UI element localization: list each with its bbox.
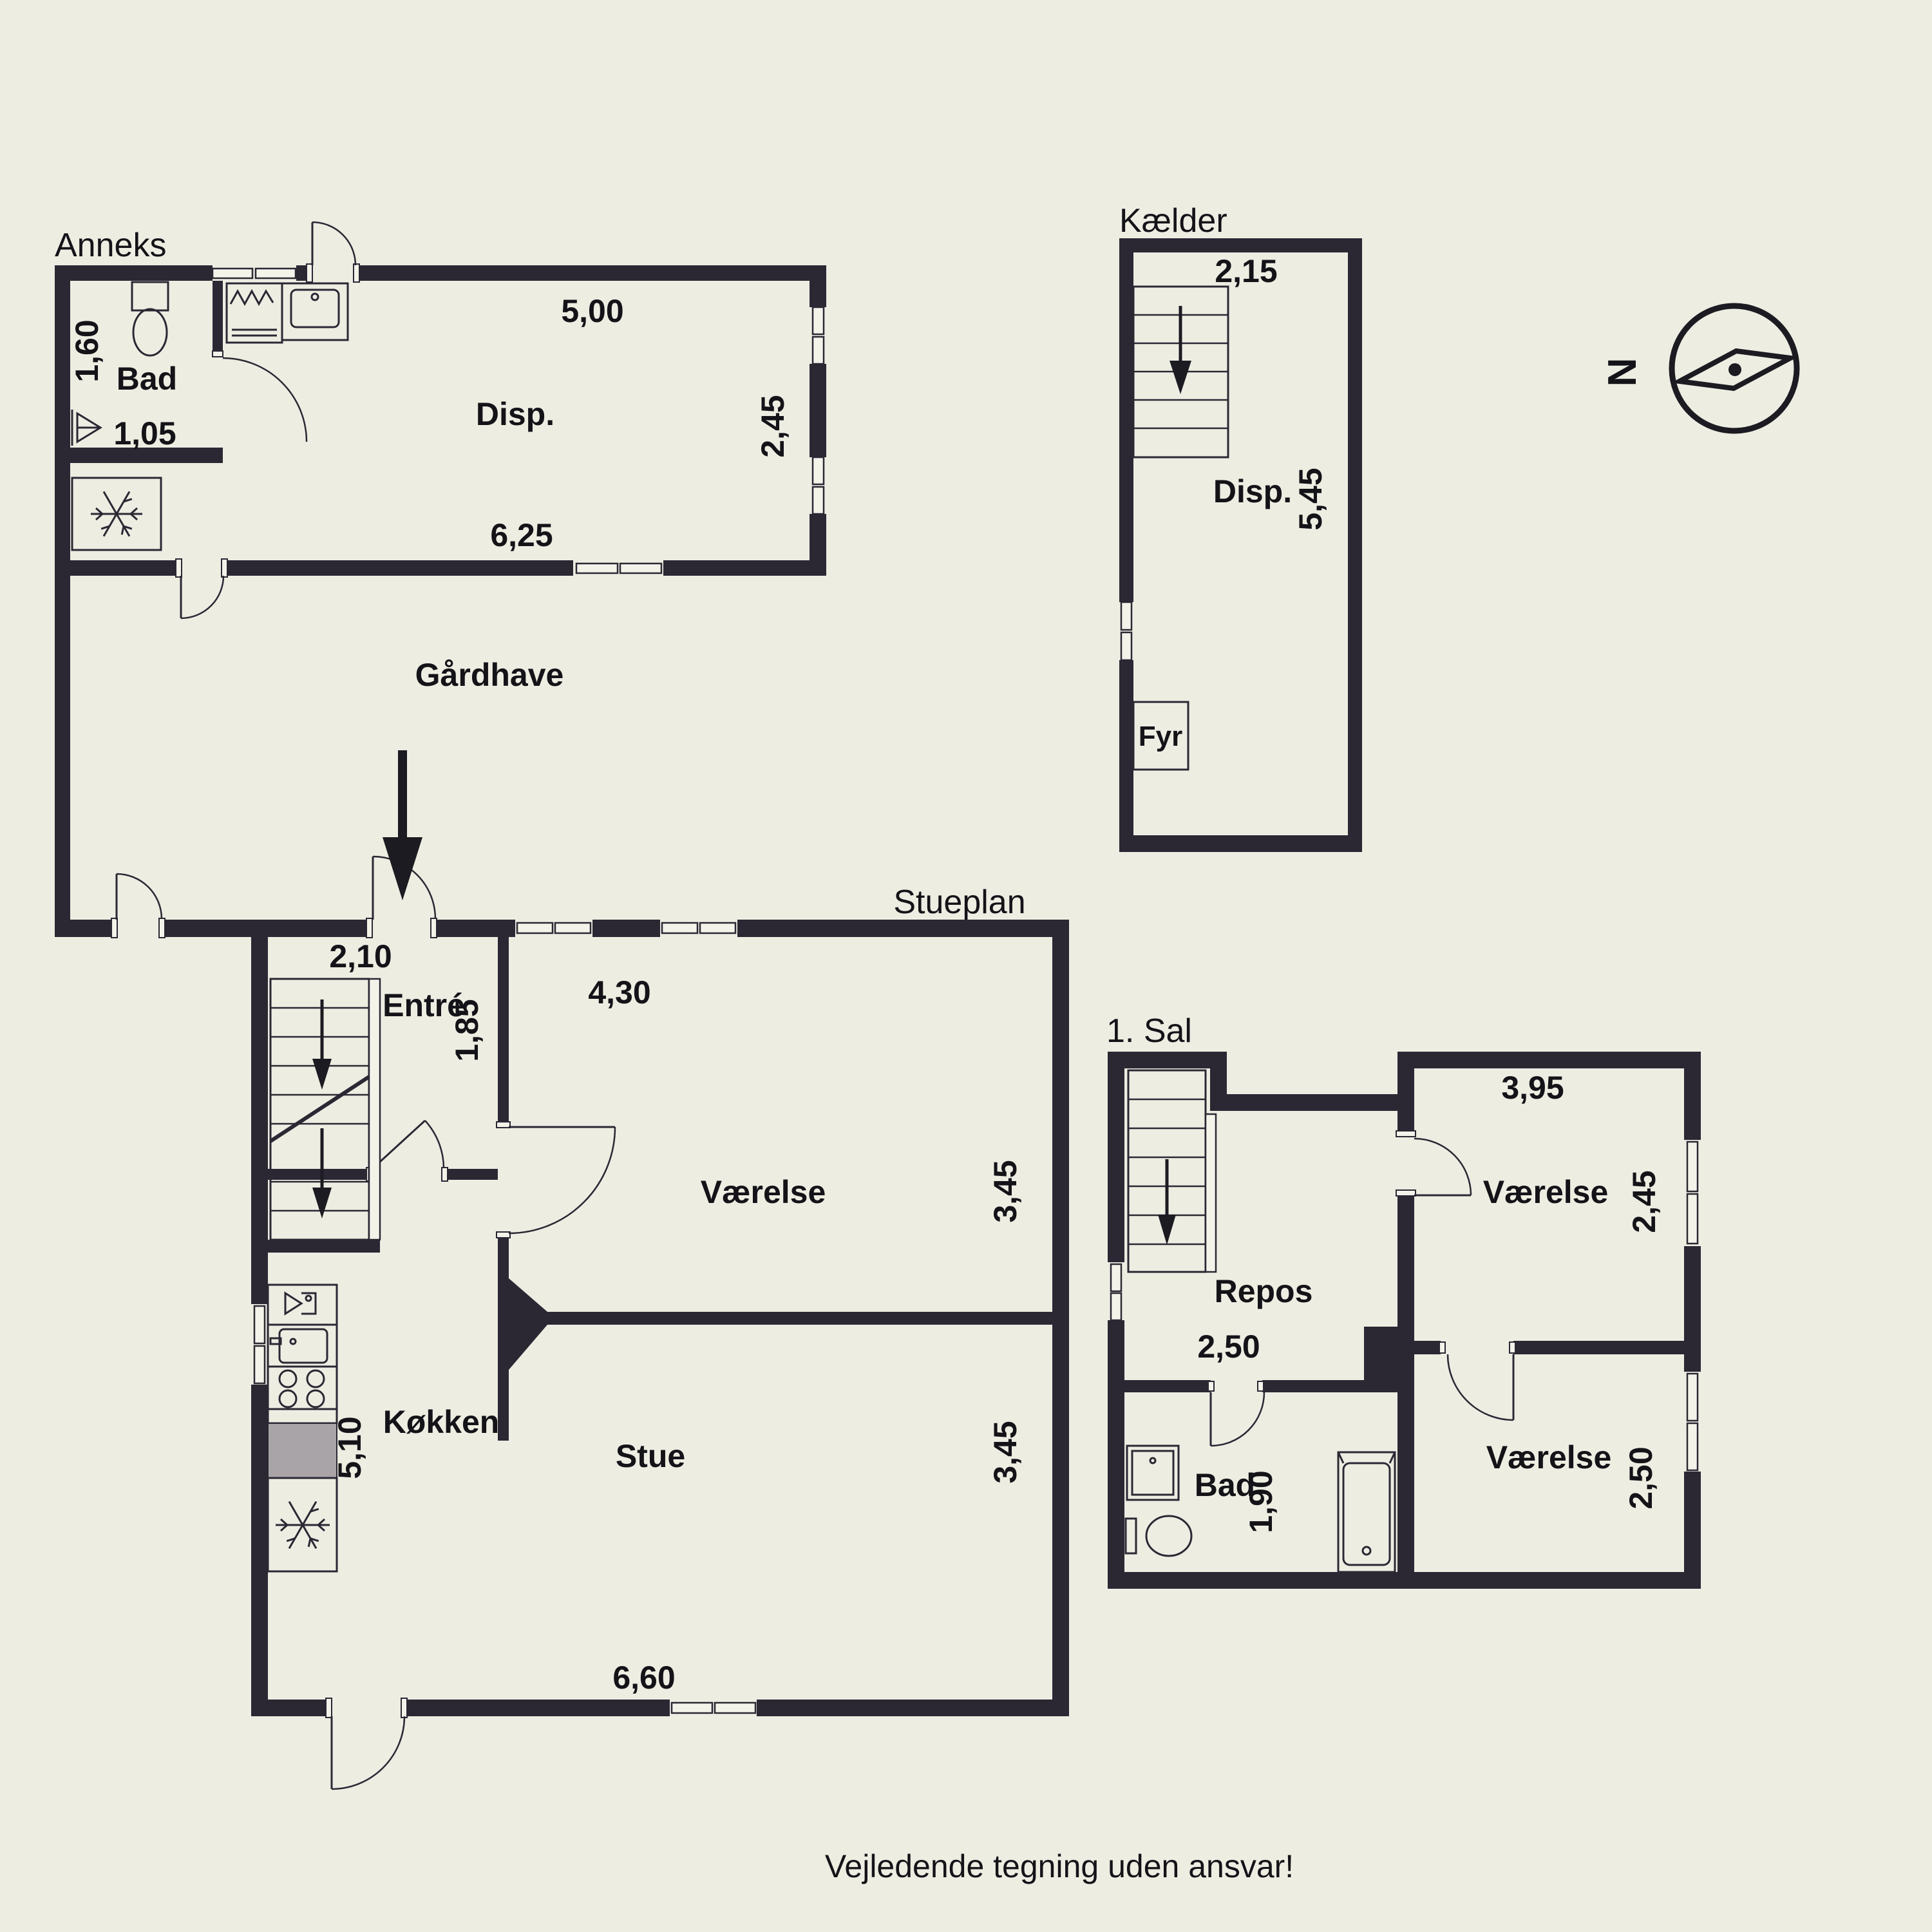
wall-segment	[1119, 835, 1362, 852]
wall-segment	[55, 920, 114, 937]
dim-vaerelse-top-height: 2,45	[1626, 1170, 1662, 1233]
wall-segment	[225, 560, 573, 576]
wall-segment	[1684, 1068, 1701, 1140]
room-label-disp: Disp.	[476, 396, 554, 432]
dim-vaerelse-bottom-height: 2,50	[1623, 1446, 1659, 1509]
wall-segment	[1052, 937, 1069, 1700]
window-pane	[1111, 1293, 1121, 1320]
wall-segment	[55, 560, 178, 576]
wall-segment	[268, 1169, 372, 1180]
window-pane	[662, 923, 697, 933]
room-label-fyr: Fyr	[1139, 721, 1182, 752]
dim-kaelder-top: 2,15	[1215, 253, 1277, 289]
window-pane	[256, 269, 296, 278]
wall-segment	[498, 937, 509, 1127]
door-jamb	[442, 1168, 448, 1181]
dim-disp-bottom: 6,25	[490, 517, 553, 553]
wall-segment	[55, 265, 70, 757]
wall-segment	[1108, 1320, 1124, 1589]
door-jamb	[159, 918, 165, 938]
wall-segment	[1414, 1341, 1441, 1354]
page-background	[0, 0, 1932, 1932]
door-jamb	[497, 1232, 510, 1238]
window-pane	[517, 923, 553, 933]
compass-center-dot	[1728, 363, 1741, 376]
window-pane	[213, 269, 252, 278]
door-jamb	[1208, 1381, 1214, 1391]
wall-segment	[1124, 1380, 1211, 1392]
wall-segment	[810, 514, 826, 576]
floorplan-drawing: Anneks	[0, 0, 1932, 1932]
room-label-repos: Repos	[1215, 1273, 1313, 1309]
foerstesal-title: 1. Sal	[1106, 1012, 1192, 1050]
wall-segment	[355, 265, 826, 281]
window-pane	[1687, 1142, 1698, 1191]
window-pane	[1687, 1374, 1698, 1421]
wall-segment	[55, 265, 213, 281]
door-jamb	[326, 1698, 332, 1718]
wall-segment	[1397, 1195, 1414, 1572]
door-jamb	[366, 918, 372, 938]
wall-segment	[592, 920, 660, 937]
window-pane	[1687, 1423, 1698, 1470]
door-jamb	[1396, 1190, 1416, 1196]
window-pane	[672, 1703, 712, 1713]
dim-vaerelse-height: 3,45	[987, 1160, 1023, 1222]
wall-segment	[443, 1169, 498, 1180]
wall-segment	[1210, 1052, 1227, 1111]
room-label-bad: Bad	[117, 361, 177, 397]
wall-segment	[161, 920, 370, 937]
kaelder-title: Kælder	[1119, 202, 1227, 240]
wall-segment	[1397, 1052, 1701, 1068]
dim-kaelder-right: 5,45	[1293, 468, 1329, 530]
door-jamb	[1258, 1381, 1264, 1391]
dim-stue-width: 6,60	[612, 1660, 675, 1696]
wall-segment	[810, 364, 826, 457]
window-pane	[813, 307, 824, 334]
room-label-vaerelse: Værelse	[701, 1174, 826, 1210]
room-label-vaerelse-bottom: Værelse	[1486, 1439, 1612, 1475]
wall-segment	[1108, 1068, 1124, 1262]
dim-disp-right: 2,45	[755, 395, 791, 457]
wall-segment	[1108, 1572, 1701, 1589]
wall-segment	[547, 1312, 1052, 1325]
door-jamb	[111, 918, 117, 938]
room-label-stue: Stue	[616, 1438, 685, 1474]
door-jamb	[497, 1122, 510, 1128]
dim-bad-height: 1,60	[69, 319, 105, 382]
wall-segment	[1108, 1052, 1227, 1068]
dim-repos-width: 2,50	[1197, 1329, 1260, 1365]
window-pane	[813, 337, 824, 364]
window-pane	[700, 923, 735, 933]
dim-disp-top: 5,00	[561, 293, 623, 329]
wall-segment	[251, 937, 268, 1304]
room-label-gaardhave: Gårdhave	[415, 657, 564, 693]
wall-segment	[810, 265, 826, 307]
wall-segment	[268, 1240, 380, 1253]
dim-vaerelse-top-width: 3,95	[1501, 1070, 1564, 1106]
wall-segment	[1397, 1068, 1414, 1137]
room-label-kaelder-disp: Disp.	[1213, 473, 1292, 509]
worktop	[268, 1423, 337, 1478]
wall-segment	[55, 757, 70, 924]
door-jamb	[401, 1698, 407, 1718]
door-jamb	[1510, 1342, 1515, 1353]
wall-segment	[435, 920, 515, 937]
door-jamb	[1396, 1131, 1416, 1137]
wall-segment	[1119, 660, 1133, 835]
door-jamb	[213, 351, 223, 357]
wall-segment	[402, 1700, 670, 1716]
window-pane	[1111, 1264, 1121, 1291]
wall-segment	[1513, 1341, 1701, 1354]
wall-segment	[663, 560, 826, 576]
wall-corner-block	[1364, 1327, 1397, 1380]
window-pane	[576, 563, 618, 573]
window-pane	[620, 563, 661, 573]
room-label-koekken: Køkken	[383, 1404, 500, 1440]
anneks-title: Anneks	[55, 227, 166, 264]
door-jamb	[307, 264, 312, 282]
wall-segment	[757, 1700, 1069, 1716]
window-pane	[254, 1346, 265, 1383]
dim-entrance-width: 2,10	[329, 938, 392, 974]
dim-vaerelse-width: 4,30	[588, 974, 650, 1010]
wall-segment	[251, 1385, 268, 1716]
dim-entre-depth: 1,85	[449, 999, 485, 1061]
dim-koekken-height: 5,10	[332, 1416, 368, 1479]
wall-segment	[1684, 1472, 1701, 1572]
stairs-rail	[369, 979, 380, 1240]
wall-segment	[213, 281, 223, 355]
wall-segment	[1119, 252, 1133, 602]
window-pane	[1121, 632, 1132, 660]
window-pane	[254, 1306, 265, 1343]
wall-segment	[498, 1236, 509, 1441]
window-pane	[555, 923, 591, 933]
door-jamb	[431, 918, 437, 938]
stueplan-title: Stueplan	[893, 884, 1025, 921]
door-jamb	[1439, 1342, 1445, 1353]
dim-bad-width: 1,05	[113, 415, 176, 451]
window-pane	[813, 457, 824, 484]
floorplan-page: Anneks	[0, 0, 1932, 1932]
window-pane	[1121, 602, 1132, 630]
wall-segment	[1227, 1094, 1397, 1111]
stairs-rail	[1206, 1114, 1216, 1272]
wall-segment	[1262, 1380, 1397, 1392]
window-pane	[813, 487, 824, 514]
wall-segment	[737, 920, 1069, 937]
dim-bad-height-sal: 1,90	[1243, 1470, 1279, 1533]
window-pane	[1687, 1194, 1698, 1244]
door-jamb	[354, 264, 359, 282]
disclaimer-text: Vejledende tegning uden ansvar!	[825, 1848, 1294, 1884]
window-pane	[715, 1703, 755, 1713]
door-jamb	[176, 559, 182, 577]
north-label: N	[1600, 358, 1645, 387]
wall-segment	[1348, 252, 1362, 835]
dim-stue-height: 3,45	[987, 1421, 1023, 1483]
room-label-vaerelse-top: Værelse	[1483, 1174, 1609, 1210]
wall-segment	[1119, 238, 1362, 252]
door-jamb	[222, 559, 227, 577]
wall-segment	[251, 1700, 332, 1716]
